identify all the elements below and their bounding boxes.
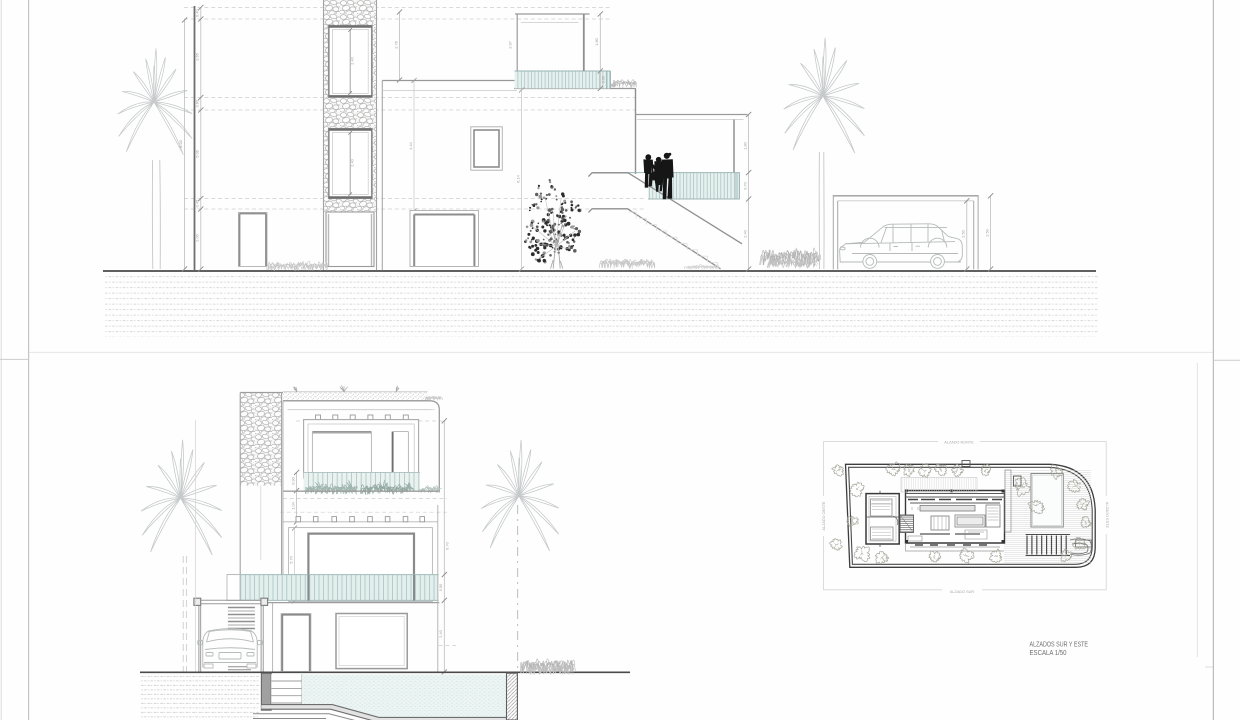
svg-text:1.04: 1.04 (290, 501, 295, 509)
svg-text:2.50: 2.50 (961, 229, 966, 237)
svg-text:ALZADO SUR: ALZADO SUR (950, 590, 975, 594)
svg-text:8.93: 8.93 (178, 140, 183, 148)
svg-text:0.90: 0.90 (601, 75, 606, 83)
svg-text:2.40: 2.40 (742, 229, 747, 237)
svg-text:0.45: 0.45 (195, 200, 200, 208)
svg-text:0.90: 0.90 (290, 476, 295, 484)
svg-text:2.97: 2.97 (508, 41, 513, 49)
svg-text:5.70: 5.70 (288, 555, 293, 563)
svg-text:ALZADO OESTE: ALZADO OESTE (822, 501, 826, 531)
svg-text:2.40: 2.40 (438, 629, 443, 637)
svg-text:6.70: 6.70 (445, 541, 450, 549)
svg-text:2.65: 2.65 (195, 53, 200, 61)
svg-text:5.06: 5.06 (195, 150, 200, 158)
svg-text:2.76: 2.76 (393, 41, 398, 49)
svg-text:0.60: 0.60 (195, 99, 200, 107)
svg-text:1.80: 1.80 (594, 37, 599, 45)
svg-text:2.40: 2.40 (349, 158, 354, 166)
svg-text:4.44: 4.44 (408, 141, 413, 149)
svg-text:ALZADO ESTE: ALZADO ESTE (1105, 502, 1109, 529)
svg-text:1.80: 1.80 (742, 141, 747, 149)
svg-text:6.14: 6.14 (515, 174, 520, 182)
svg-text:2.40: 2.40 (349, 56, 354, 64)
svg-text:2.50: 2.50 (984, 228, 989, 236)
svg-text:ESCALA 1/50: ESCALA 1/50 (1030, 648, 1067, 657)
svg-text:ALZADO NORTE: ALZADO NORTE (944, 440, 974, 444)
svg-text:0.90: 0.90 (438, 583, 443, 591)
svg-text:2.00: 2.00 (195, 233, 200, 241)
svg-text:0.40: 0.40 (195, 9, 200, 17)
svg-text:0.70: 0.70 (742, 181, 747, 189)
